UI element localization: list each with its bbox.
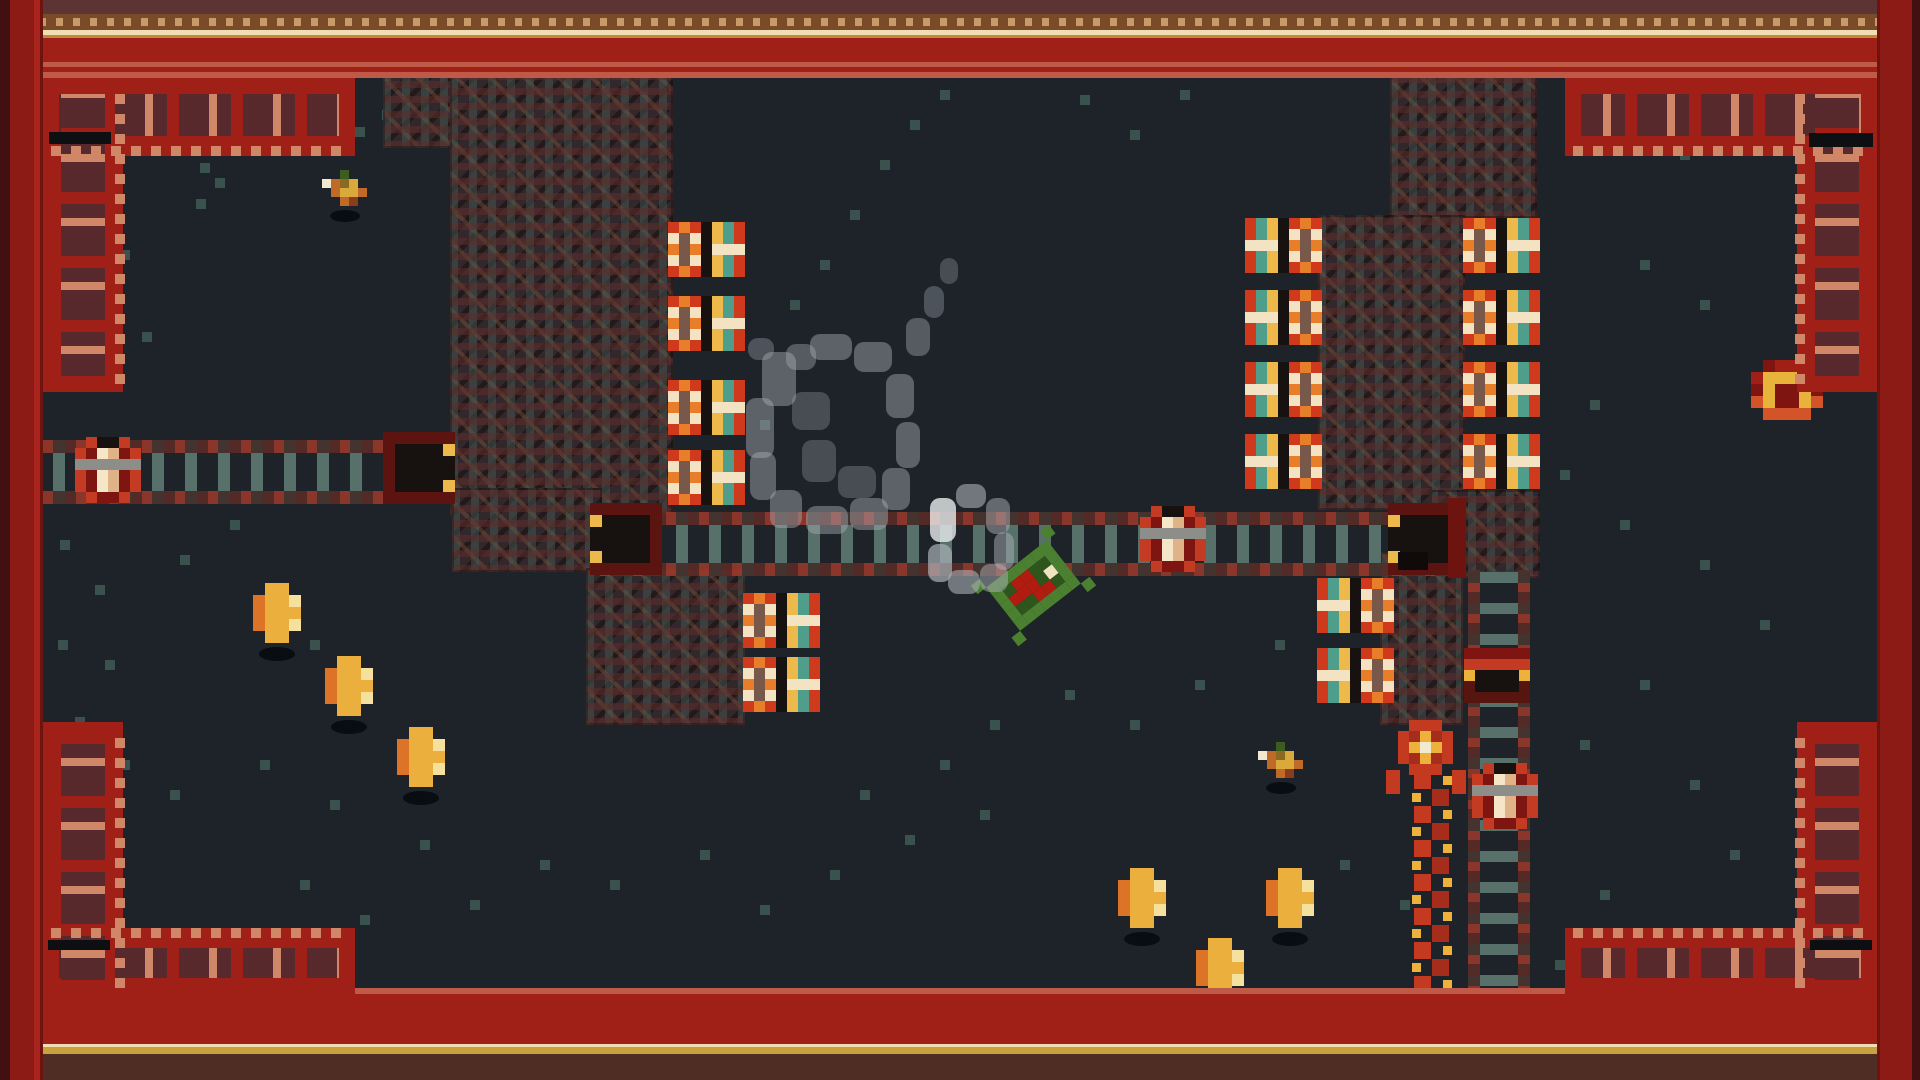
fire-snake-segment[interactable] bbox=[1432, 823, 1449, 840]
wall-turret-pixel bbox=[690, 391, 701, 402]
wall-turret-pixel bbox=[1278, 229, 1289, 240]
wall-turret-pixel bbox=[1267, 456, 1278, 467]
wall-turret-pixel bbox=[1289, 218, 1300, 229]
wall-turret-pixel bbox=[1267, 445, 1278, 456]
fire-snake-segment[interactable] bbox=[1432, 857, 1449, 874]
wall-turret-pixel bbox=[1361, 648, 1372, 659]
pot-pixel bbox=[119, 481, 130, 492]
fire-snake-segment[interactable] bbox=[1414, 908, 1431, 925]
wall-turret-pixel bbox=[1518, 323, 1529, 334]
smoke-puff bbox=[792, 392, 830, 430]
wall-turret-pixel bbox=[1507, 290, 1518, 301]
wall-turret-pixel bbox=[1278, 467, 1289, 478]
coin-pixel bbox=[1290, 892, 1302, 904]
temple-door-pixel bbox=[1763, 408, 1775, 420]
duck-pixel bbox=[1267, 760, 1276, 769]
coin-pixel bbox=[1220, 986, 1232, 998]
background-speckle bbox=[196, 199, 206, 209]
wall-turret-pixel bbox=[1289, 301, 1300, 312]
temple-door-pixel bbox=[1751, 384, 1763, 396]
pot-pixel bbox=[1483, 774, 1494, 785]
rail-tunnel-pixel bbox=[638, 551, 650, 563]
wall-turret-pixel bbox=[723, 329, 734, 340]
wall-turret-pixel bbox=[1474, 373, 1485, 384]
wall-turret-pixel bbox=[712, 380, 723, 391]
temple-door-pixel bbox=[1775, 396, 1787, 408]
rail-tunnel-pixel bbox=[383, 444, 395, 456]
wall-turret-pixel bbox=[668, 461, 679, 472]
background-speckle bbox=[760, 905, 770, 915]
coin-pixel bbox=[325, 668, 337, 680]
smoke-puff bbox=[930, 498, 956, 542]
duck-pixel bbox=[349, 179, 358, 188]
rail-tunnel-pixel bbox=[395, 432, 407, 444]
coin-pixel bbox=[1278, 868, 1290, 880]
wall-turret-pixel bbox=[1474, 334, 1485, 345]
wall-turret-pixel bbox=[809, 593, 820, 604]
temple-door-pixel bbox=[1763, 360, 1775, 372]
wall-turret bbox=[668, 296, 745, 351]
pot[interactable] bbox=[1472, 763, 1538, 829]
coin-pixel bbox=[1208, 950, 1220, 962]
wall-turret-pixel bbox=[1300, 395, 1311, 406]
wall-turret-pixel bbox=[712, 266, 723, 277]
pot-pixel bbox=[75, 481, 86, 492]
wall-turret-pixel bbox=[1518, 290, 1529, 301]
coin-pixel bbox=[277, 631, 289, 643]
background-speckle bbox=[180, 555, 190, 565]
wall-turret-pixel bbox=[765, 657, 776, 668]
wall-turret-pixel bbox=[1328, 659, 1339, 670]
pot[interactable] bbox=[1140, 506, 1206, 572]
wall-turret-pixel bbox=[734, 472, 745, 483]
fire-snake-segment[interactable] bbox=[1432, 891, 1449, 908]
fire-snake-segment[interactable] bbox=[1414, 772, 1431, 789]
wall-turret-pixel bbox=[1245, 229, 1256, 240]
background-speckle bbox=[355, 127, 365, 137]
pot-pixel bbox=[1184, 561, 1195, 572]
background-speckle bbox=[1195, 680, 1205, 690]
coin-pixel bbox=[1130, 904, 1142, 916]
pot-pixel bbox=[119, 492, 130, 503]
wall-turret-pixel bbox=[1518, 301, 1529, 312]
wall-turret-pixel bbox=[1300, 334, 1311, 345]
coin-pixel bbox=[1278, 892, 1290, 904]
rail-buffer-pixel bbox=[1508, 659, 1519, 670]
coin-pixel bbox=[289, 607, 301, 619]
wall-turret-pixel bbox=[701, 413, 712, 424]
pot-pixel bbox=[1140, 517, 1151, 528]
pot-pixel bbox=[108, 481, 119, 492]
background-speckle bbox=[1690, 780, 1700, 790]
duck-pixel bbox=[1276, 742, 1285, 751]
fire-snake-head[interactable] bbox=[1398, 720, 1453, 775]
wall-turret-pixel bbox=[1496, 251, 1507, 262]
wall-turret-pixel bbox=[1300, 362, 1311, 373]
wall-turret-pixel bbox=[1245, 395, 1256, 406]
coin-pixel bbox=[1220, 974, 1232, 986]
wall-turret bbox=[1463, 290, 1540, 345]
duck-pixel bbox=[340, 188, 349, 197]
fire-snake-head-pixel bbox=[1409, 720, 1420, 731]
pot-pixel bbox=[1505, 818, 1516, 829]
wall-turret-pixel bbox=[668, 380, 679, 391]
wall-turret-pixel bbox=[1496, 312, 1507, 323]
coin-pixel bbox=[1220, 950, 1232, 962]
rail-tunnel-pixel bbox=[1388, 503, 1400, 515]
wall-turret-pixel bbox=[754, 690, 765, 701]
wall-turret-pixel bbox=[1245, 323, 1256, 334]
rail-tunnel-pixel bbox=[431, 444, 443, 456]
pot-pixel bbox=[1527, 774, 1538, 785]
rail-tunnel-pixel bbox=[638, 515, 650, 527]
wall-turret-pixel bbox=[1485, 362, 1496, 373]
pot-pixel bbox=[1184, 528, 1195, 539]
wall-turret-pixel bbox=[1317, 659, 1328, 670]
coin-pixel bbox=[1290, 904, 1302, 916]
wall-turret-pixel bbox=[1245, 334, 1256, 345]
wall-turret-pixel bbox=[1289, 290, 1300, 301]
coin-pixel bbox=[397, 739, 409, 751]
rail-tunnel-pixel bbox=[626, 503, 638, 515]
wall-turret-pixel bbox=[1463, 456, 1474, 467]
rail-tunnel-pixel bbox=[419, 456, 431, 468]
smoke-puff bbox=[986, 498, 1010, 534]
wall-turret-pixel bbox=[1518, 395, 1529, 406]
duck-pixel bbox=[1276, 769, 1285, 778]
wall-turret-pixel bbox=[1496, 301, 1507, 312]
wall-turret-pixel bbox=[1372, 670, 1383, 681]
rail-tunnel-pixel bbox=[431, 480, 443, 492]
wall-turret-pixel bbox=[1507, 456, 1518, 467]
background-speckle bbox=[850, 210, 860, 220]
rail-tunnel-pixel bbox=[407, 456, 419, 468]
wall-turret-pixel bbox=[809, 657, 820, 668]
wall-turret-pixel bbox=[1474, 395, 1485, 406]
temple-door-pixel bbox=[1799, 360, 1811, 372]
background-speckle bbox=[60, 540, 70, 550]
wall-turret-pixel bbox=[765, 668, 776, 679]
wall-turret-pixel bbox=[1496, 434, 1507, 445]
wall-turret-pixel bbox=[1361, 622, 1372, 633]
coin-pixel bbox=[1118, 892, 1130, 904]
wall-turret-pixel bbox=[1300, 290, 1311, 301]
temple-door-pixel bbox=[1787, 372, 1799, 384]
background-speckle bbox=[940, 760, 950, 770]
rail-buffer-pixel bbox=[1519, 659, 1530, 670]
temple-door-pixel bbox=[1775, 360, 1787, 372]
wall-turret-pixel bbox=[734, 244, 745, 255]
duck-pixel bbox=[358, 188, 367, 197]
duck[interactable] bbox=[1258, 742, 1303, 778]
wall-turret-pixel bbox=[723, 483, 734, 494]
wall-turret-pixel bbox=[712, 494, 723, 505]
wall-turret-pixel bbox=[712, 424, 723, 435]
pot-pixel bbox=[1494, 763, 1505, 774]
wall-turret-pixel bbox=[1350, 611, 1361, 622]
pot-pixel bbox=[1162, 528, 1173, 539]
duck[interactable] bbox=[322, 170, 367, 206]
wall-turret-pixel bbox=[1339, 659, 1350, 670]
background-speckle bbox=[1730, 850, 1740, 860]
wall-turret-pixel bbox=[1496, 456, 1507, 467]
rail-buffer[interactable] bbox=[1464, 648, 1530, 703]
wall-turret-pixel bbox=[1507, 362, 1518, 373]
wall-turret-pixel bbox=[690, 461, 701, 472]
wall-turret-pixel bbox=[1463, 373, 1474, 384]
wall-turret-pixel bbox=[712, 222, 723, 233]
wall-turret-pixel bbox=[798, 637, 809, 648]
wall-turret-pixel bbox=[1267, 434, 1278, 445]
background-speckle bbox=[910, 120, 920, 130]
wall-turret-pixel bbox=[734, 413, 745, 424]
coin[interactable] bbox=[325, 656, 373, 716]
wall-turret-pixel bbox=[1474, 229, 1485, 240]
wall-turret-pixel bbox=[679, 255, 690, 266]
fire-snake-segment[interactable] bbox=[1414, 840, 1431, 857]
pot-pixel bbox=[1527, 785, 1538, 796]
fire-snake-ember bbox=[1443, 776, 1452, 785]
fire-snake-segment[interactable] bbox=[1414, 806, 1431, 823]
coin-pixel bbox=[421, 775, 433, 787]
wall-turret-pixel bbox=[1507, 406, 1518, 417]
wall-turret-pixel bbox=[1300, 251, 1311, 262]
wall-turret-pixel bbox=[1507, 312, 1518, 323]
wall-turret-pixel bbox=[1496, 395, 1507, 406]
wall-turret-pixel bbox=[1267, 251, 1278, 262]
wall-turret-pixel bbox=[1507, 229, 1518, 240]
smoke-puff bbox=[786, 344, 816, 370]
wall-turret-pixel bbox=[1311, 406, 1322, 417]
background-speckle bbox=[860, 790, 870, 800]
wall-turret-pixel bbox=[712, 244, 723, 255]
smoke-puff bbox=[748, 338, 774, 360]
wall-turret-pixel bbox=[1463, 434, 1474, 445]
pot-pixel bbox=[1505, 763, 1516, 774]
wall-turret-pixel bbox=[1496, 384, 1507, 395]
wall-turret-pixel bbox=[701, 380, 712, 391]
wall-turret-pixel bbox=[1383, 692, 1394, 703]
coin-pixel bbox=[253, 619, 265, 631]
wall-turret-pixel bbox=[765, 701, 776, 712]
wall-turret-pixel bbox=[723, 233, 734, 244]
duck-pixel bbox=[1267, 751, 1276, 760]
wall-turret-pixel bbox=[798, 668, 809, 679]
fire-snake-ember bbox=[1412, 895, 1421, 904]
pot-pixel bbox=[1527, 796, 1538, 807]
wall-turret-pixel bbox=[690, 296, 701, 307]
wall-turret-pixel bbox=[1350, 681, 1361, 692]
wall-turret-pixel bbox=[1350, 600, 1361, 611]
fire-snake-segment[interactable] bbox=[1432, 789, 1449, 806]
coin-pixel bbox=[1302, 880, 1314, 892]
wall-turret-pixel bbox=[1328, 600, 1339, 611]
coin-shadow bbox=[331, 720, 367, 734]
smoke-puff bbox=[770, 490, 802, 528]
pot-pixel bbox=[1162, 550, 1173, 561]
wall-turret-pixel bbox=[1518, 262, 1529, 273]
coin-pixel bbox=[433, 751, 445, 763]
wall-turret-pixel bbox=[690, 318, 701, 329]
fire-snake-segment[interactable] bbox=[1414, 942, 1431, 959]
duck-pixel bbox=[1285, 760, 1294, 769]
wall-turret-pixel bbox=[798, 626, 809, 637]
wall-turret-pixel bbox=[679, 307, 690, 318]
wall-turret-pixel bbox=[1300, 240, 1311, 251]
wall-turret-pixel bbox=[1300, 323, 1311, 334]
wall-turret-pixel bbox=[734, 266, 745, 277]
wall-turret-pixel bbox=[1311, 312, 1322, 323]
wall-turret-pixel bbox=[668, 413, 679, 424]
coin-pixel bbox=[1208, 986, 1220, 998]
pot-pixel bbox=[1195, 539, 1206, 550]
wall-turret-pixel bbox=[1463, 323, 1474, 334]
rail-buffer-pixel bbox=[1508, 681, 1519, 692]
coin[interactable] bbox=[1196, 938, 1244, 998]
wall-turret-pixel bbox=[701, 461, 712, 472]
duck-pixel bbox=[331, 179, 340, 188]
coin-pixel bbox=[1290, 916, 1302, 928]
wall-turret-pixel bbox=[679, 461, 690, 472]
wall-turret-pixel bbox=[701, 450, 712, 461]
wall-turret-pixel bbox=[1289, 456, 1300, 467]
wall-turret-pixel bbox=[712, 461, 723, 472]
pot-pixel bbox=[1494, 774, 1505, 785]
wall-turret-pixel bbox=[712, 340, 723, 351]
duck-pixel bbox=[1294, 760, 1303, 769]
pot-pixel bbox=[1494, 807, 1505, 818]
rail-tunnel-pixel bbox=[626, 551, 638, 563]
pot-pixel bbox=[130, 470, 141, 481]
coin-pixel bbox=[1232, 962, 1244, 974]
fire-snake-head-pixel bbox=[1398, 742, 1409, 753]
coin-pixel bbox=[1142, 904, 1154, 916]
rail-buffer-pixel bbox=[1497, 670, 1508, 681]
pot-pixel bbox=[1140, 528, 1151, 539]
coin[interactable] bbox=[397, 727, 445, 787]
wall-turret-pixel bbox=[723, 402, 734, 413]
wall-turret-pixel bbox=[1496, 290, 1507, 301]
wall-turret-pixel bbox=[690, 255, 701, 266]
rail-buffer-pixel bbox=[1519, 648, 1530, 659]
wall-turret-pixel bbox=[1300, 384, 1311, 395]
coin[interactable] bbox=[1266, 868, 1314, 928]
fire-snake-segment[interactable] bbox=[1414, 874, 1431, 891]
wall-turret-pixel bbox=[1317, 611, 1328, 622]
coin-pixel bbox=[409, 727, 421, 739]
fire-snake-head-pixel bbox=[1409, 742, 1420, 753]
wall-turret-pixel bbox=[1289, 240, 1300, 251]
wall-turret-pixel bbox=[712, 450, 723, 461]
wall-turret-pixel bbox=[776, 668, 787, 679]
wall-turret-pixel bbox=[690, 307, 701, 318]
rail-tunnel-pixel bbox=[590, 563, 602, 575]
wall-turret-pixel bbox=[798, 593, 809, 604]
coin-pixel bbox=[1118, 880, 1130, 892]
wall-turret-pixel bbox=[1278, 456, 1289, 467]
rail-tunnel-pixel bbox=[431, 492, 443, 504]
wall-turret-pixel bbox=[1245, 467, 1256, 478]
wall-turret-pixel bbox=[1245, 251, 1256, 262]
background-speckle bbox=[1680, 150, 1690, 160]
coin-pixel bbox=[1196, 974, 1208, 986]
wall-turret-pixel bbox=[743, 690, 754, 701]
wall-turret-pixel bbox=[1300, 434, 1311, 445]
fire-snake-head-pixel bbox=[1420, 753, 1431, 764]
rail-buffer-pixel bbox=[1475, 670, 1486, 681]
fire-snake-segment[interactable] bbox=[1432, 925, 1449, 942]
wall-turret-pixel bbox=[734, 222, 745, 233]
rail-buffer-pixel bbox=[1508, 670, 1519, 681]
wall-turret-pixel bbox=[1350, 648, 1361, 659]
wall-turret-pixel bbox=[1529, 290, 1540, 301]
wall-turret-pixel bbox=[1463, 301, 1474, 312]
pot-pixel bbox=[1184, 550, 1195, 561]
wall-turret-pixel bbox=[723, 461, 734, 472]
pot-pixel bbox=[1516, 763, 1527, 774]
wall-turret-pixel bbox=[1289, 384, 1300, 395]
wall-turret-pixel bbox=[701, 255, 712, 266]
wall-turret bbox=[1245, 362, 1322, 417]
wall-turret-pixel bbox=[1267, 478, 1278, 489]
fire-snake-segment[interactable] bbox=[1432, 959, 1449, 976]
background-speckle bbox=[790, 300, 800, 310]
fire-snake-ember bbox=[1412, 827, 1421, 836]
wall-turret-pixel bbox=[723, 391, 734, 402]
pot-pixel bbox=[86, 492, 97, 503]
pot-pixel bbox=[1195, 550, 1206, 561]
pot-pixel bbox=[1483, 818, 1494, 829]
wall-turret-pixel bbox=[1507, 218, 1518, 229]
wall-turret-pixel bbox=[1289, 434, 1300, 445]
background-speckle bbox=[200, 163, 210, 173]
wall-turret-pixel bbox=[734, 461, 745, 472]
pot[interactable] bbox=[75, 437, 141, 503]
background-speckle bbox=[260, 760, 270, 770]
coin[interactable] bbox=[253, 583, 301, 643]
background-speckle bbox=[215, 178, 225, 188]
wall-turret-pixel bbox=[723, 380, 734, 391]
wall-turret-pixel bbox=[1278, 362, 1289, 373]
fire-snake-segment[interactable] bbox=[1414, 976, 1431, 993]
wall-turret-pixel bbox=[1529, 373, 1540, 384]
coin-pixel bbox=[409, 763, 421, 775]
coin[interactable] bbox=[1118, 868, 1166, 928]
wall-turret-pixel bbox=[1350, 659, 1361, 670]
coin-pixel bbox=[433, 739, 445, 751]
wall-turret-pixel bbox=[723, 424, 734, 435]
wall-turret-pixel bbox=[712, 413, 723, 424]
wall-turret-pixel bbox=[1267, 362, 1278, 373]
rail-tunnel-pixel bbox=[626, 563, 638, 575]
coin-pixel bbox=[265, 619, 277, 631]
wall-turret-pixel bbox=[1256, 323, 1267, 334]
fire-snake-head-pixel bbox=[1398, 753, 1409, 764]
wall-turret-pixel bbox=[1463, 384, 1474, 395]
wall-turret-pixel bbox=[754, 657, 765, 668]
wall-turret-pixel bbox=[1328, 670, 1339, 681]
wall-turret-pixel bbox=[1278, 478, 1289, 489]
fire-snake-ember bbox=[1443, 946, 1452, 955]
wall-turret-pixel bbox=[734, 402, 745, 413]
wall-turret-pixel bbox=[1300, 229, 1311, 240]
temple-door[interactable] bbox=[1751, 360, 1823, 420]
wall-turret-pixel bbox=[1311, 434, 1322, 445]
wall-turret-pixel bbox=[1311, 323, 1322, 334]
rail-buffer-pixel bbox=[1486, 670, 1497, 681]
wall-turret-pixel bbox=[679, 329, 690, 340]
duck-pixel bbox=[1276, 760, 1285, 769]
